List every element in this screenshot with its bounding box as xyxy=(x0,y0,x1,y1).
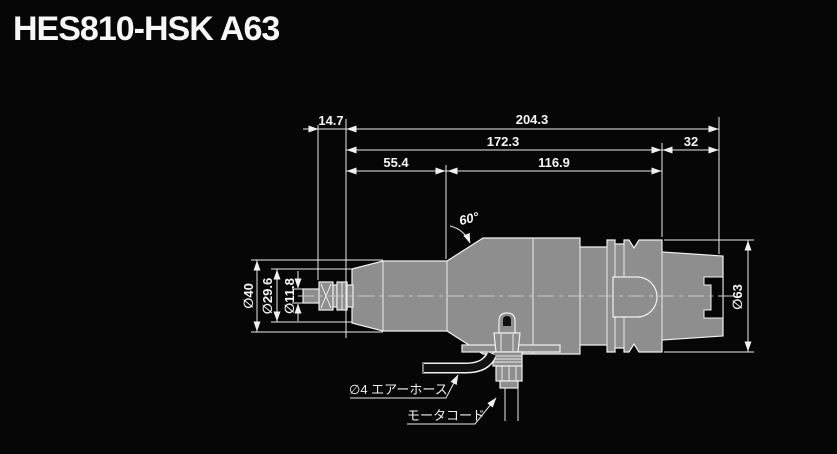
eyelet-hole xyxy=(503,316,511,326)
air-hose-label: ∅4 エアーホース xyxy=(349,382,448,397)
technical-drawing: 60° ∅4 エアーホース モータコード 14.7 204.3 172.3 32… xyxy=(0,0,837,454)
angle-arc-arrow xyxy=(450,226,470,243)
dim-label-116-9: 116.9 xyxy=(538,155,570,170)
dia-label-40: ∅40 xyxy=(241,283,256,309)
dia-label-29-6: ∅29.6 xyxy=(260,278,275,314)
dim-label-32: 32 xyxy=(684,134,698,149)
dia-label-11-8: ∅11.8 xyxy=(282,278,297,314)
dim-label-172-3: 172.3 xyxy=(487,134,520,149)
angle-callout: 60° xyxy=(450,209,481,243)
dia-label-63: ∅63 xyxy=(730,284,745,310)
connector-block xyxy=(494,333,520,352)
drawing-page: HES810-HSK A63 xyxy=(0,0,837,454)
dim-label-55-4: 55.4 xyxy=(383,155,409,170)
angle-label: 60° xyxy=(458,209,481,229)
callouts: ∅4 エアーホース モータコード xyxy=(349,375,496,424)
dim-label-204-3: 204.3 xyxy=(516,112,549,127)
dim-label-14-7: 14.7 xyxy=(318,113,343,128)
flange-gripper-detail xyxy=(613,277,657,317)
cord-neck xyxy=(500,381,518,388)
motor-cord-label: モータコード xyxy=(407,408,485,423)
air-hose-tube xyxy=(423,354,492,368)
air-hose xyxy=(423,354,492,374)
